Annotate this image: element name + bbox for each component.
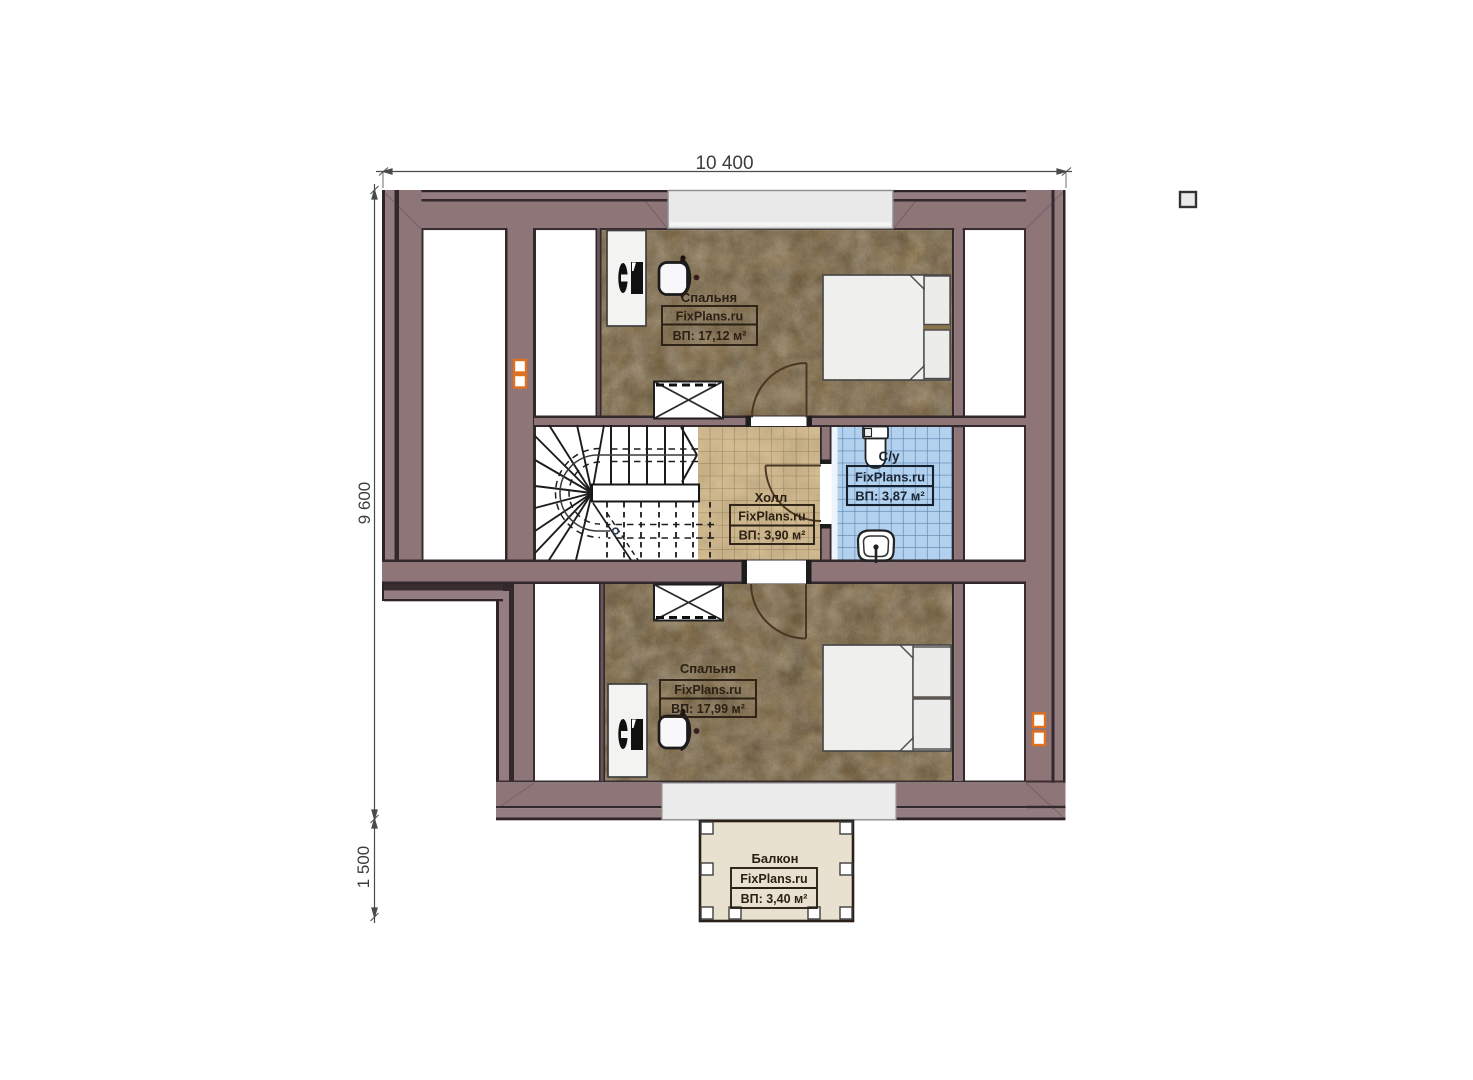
svg-text:9 600: 9 600 [355,482,374,525]
svg-text:ВП: 3,40 м²: ВП: 3,40 м² [741,892,808,906]
svg-text:1 500: 1 500 [354,846,373,889]
svg-text:FixPlans.ru: FixPlans.ru [674,683,741,697]
svg-text:ВП: 17,12 м²: ВП: 17,12 м² [673,329,747,343]
svg-text:С/у: С/у [878,449,900,464]
svg-text:FixPlans.ru: FixPlans.ru [676,310,743,324]
svg-text:10 400: 10 400 [695,153,753,174]
svg-text:ВП: 3,87 м²: ВП: 3,87 м² [855,489,925,504]
svg-text:ВП: 3,90 м²: ВП: 3,90 м² [739,529,806,543]
svg-text:Спальня: Спальня [681,290,737,305]
svg-text:Балкон: Балкон [752,851,799,866]
svg-text:FixPlans.ru: FixPlans.ru [740,872,807,886]
svg-text:Холл: Холл [755,490,788,505]
svg-text:FixPlans.ru: FixPlans.ru [738,510,805,524]
svg-text:ВП: 17,99 м²: ВП: 17,99 м² [671,702,745,716]
svg-text:FixPlans.ru: FixPlans.ru [855,470,925,485]
svg-text:Спальня: Спальня [680,661,736,676]
